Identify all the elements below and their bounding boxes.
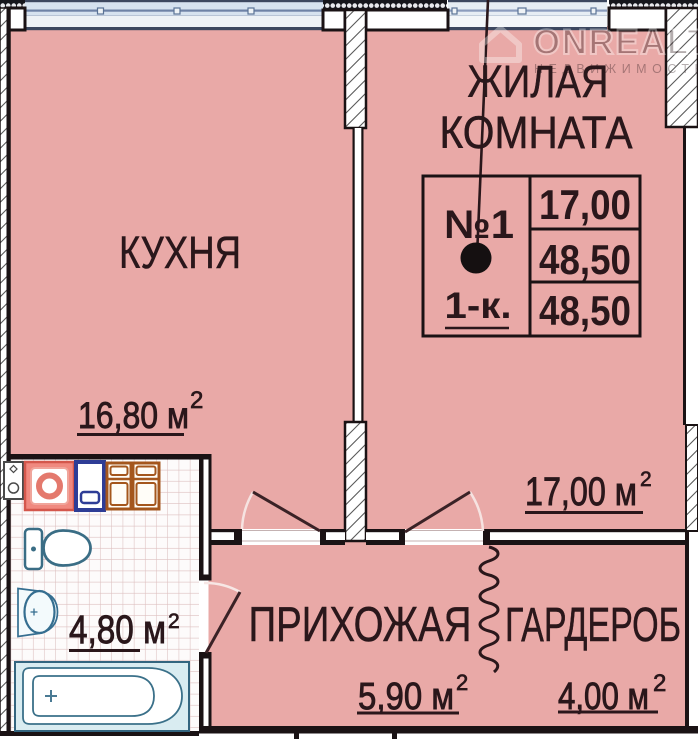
svg-text:2: 2 bbox=[456, 670, 468, 695]
svg-text:КУХНЯ: КУХНЯ bbox=[119, 227, 241, 278]
svg-text:48,50: 48,50 bbox=[539, 236, 631, 283]
svg-text:ГАРДЕРОБ: ГАРДЕРОБ bbox=[505, 599, 681, 652]
svg-text:1-к.: 1-к. bbox=[445, 285, 512, 326]
svg-text:2: 2 bbox=[190, 387, 203, 414]
svg-text:17,00: 17,00 bbox=[539, 181, 631, 228]
svg-text:2: 2 bbox=[168, 610, 180, 633]
svg-text:№1: №1 bbox=[444, 203, 514, 247]
svg-text:17,00 м: 17,00 м bbox=[525, 470, 637, 514]
svg-text:ONREALTY: ONREALTY bbox=[533, 23, 698, 62]
svg-text:КОМНАТА: КОМНАТА bbox=[440, 107, 633, 158]
svg-text:ПРИХОЖАЯ: ПРИХОЖАЯ bbox=[249, 598, 472, 652]
svg-text:4,80 м: 4,80 м bbox=[69, 608, 166, 652]
svg-text:НЕДВИЖИМОСТЬ: НЕДВИЖИМОСТЬ bbox=[534, 62, 698, 76]
svg-text:48,50: 48,50 bbox=[539, 287, 631, 334]
svg-text:2: 2 bbox=[653, 670, 666, 697]
svg-text:2: 2 bbox=[640, 468, 652, 491]
svg-text:16,80 м: 16,80 м bbox=[78, 395, 189, 436]
